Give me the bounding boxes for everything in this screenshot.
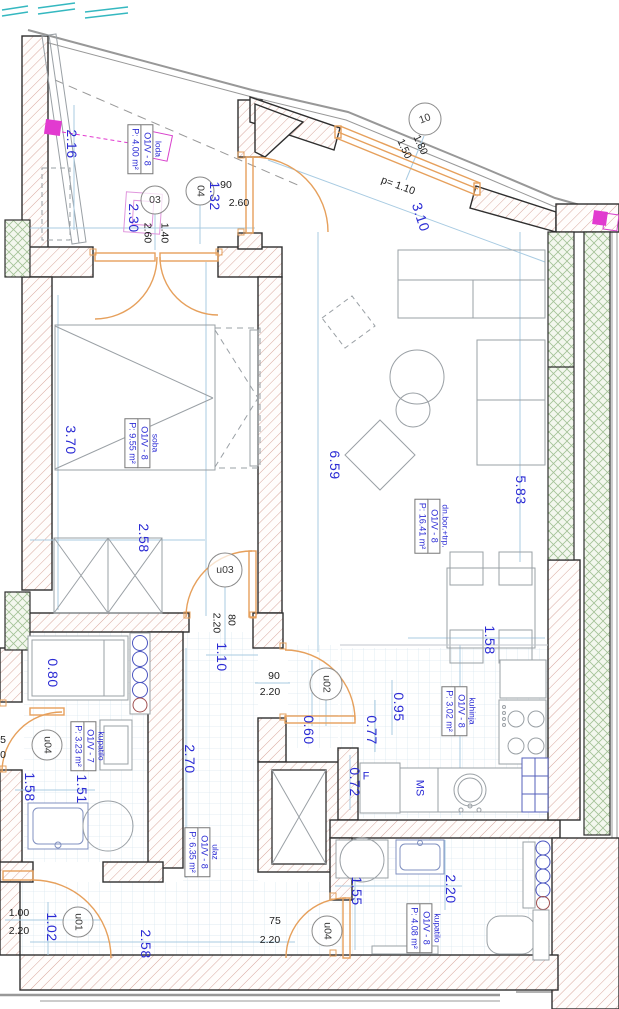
door-tag-03: 03 (149, 195, 161, 206)
room-area: P: 4.08 m² (407, 903, 420, 953)
dim-loda-height: 2.16 (65, 129, 79, 158)
shaft (272, 770, 326, 864)
dim-hall-opening: 1.10 (215, 642, 229, 671)
dim-living-len: 6.59 (328, 450, 342, 479)
dim-bath1-w1: 1.58 (23, 772, 37, 801)
dim-soba-width: 2.58 (137, 523, 151, 552)
room-area: P: 9.55 m² (125, 418, 138, 468)
dim-bath1-w2: 1.51 (75, 774, 89, 803)
dim-kitchen-w: 1.58 (483, 625, 497, 654)
dim-k-seg2: 0.77 (365, 715, 379, 744)
dim-u03-w: 80 (226, 614, 237, 626)
dim-k-seg1: 0.60 (302, 715, 316, 744)
living-room-furniture (322, 250, 548, 663)
room-label-kupatilo-1: kupatilo O1/V - 7 P: 3.23 m² (71, 721, 106, 771)
room-name: dn.bor.+trp. (439, 499, 449, 554)
room-unit: O1/V - 7 (83, 721, 96, 771)
dim-u04b-w: 75 (269, 916, 281, 927)
dim-edge-partial-2: 0 (0, 750, 6, 761)
room-name: kupatilo (431, 903, 441, 953)
room-unit: O1/V - 8 (427, 499, 440, 554)
dim-bath2-w: 2.20 (444, 874, 458, 903)
door-tag-u01: u01 (73, 913, 84, 931)
door-tag-u02: u02 (321, 675, 332, 693)
room-label-dnevni-boravak: dn.bor.+trp. O1/V - 8 P: 16.41 m² (415, 499, 450, 554)
dim-entry-seg: 1.02 (45, 912, 59, 941)
dim-k-seg3: 0.95 (392, 692, 406, 721)
dim-k-seg4: 0.72 (348, 767, 362, 796)
dim-loda-w1: 2.30 (127, 203, 141, 232)
room-area: P: 3.23 m² (71, 721, 84, 771)
door-tag-u04a: u04 (42, 736, 53, 754)
dim-hall-width: 2.70 (183, 744, 197, 773)
room-label-ulaz: ulaz O1/V - 8 P: 6.35 m² (185, 827, 220, 877)
dim-door04-h: 2.60 (229, 198, 249, 209)
room-name: ulaz (209, 827, 219, 877)
label-fridge: F (363, 772, 370, 783)
floor-plan-page: 2.16 2.30 1.32 3.10 3.70 6.59 5.83 2.58 … (0, 0, 619, 1009)
cyan-survey-marks (2, 3, 128, 18)
dim-soba-height: 3.70 (64, 425, 78, 454)
room-unit: O1/V - 8 (419, 903, 432, 953)
dim-edge-partial-1: 5 (0, 735, 6, 746)
room-unit: O1/V - 8 (137, 418, 150, 468)
dim-shower-w: 0.80 (46, 658, 60, 687)
dim-door03-h: 2.60 (142, 223, 153, 243)
dim-door03-w: 1.40 (159, 223, 170, 243)
room-area: P: 16.41 m² (415, 499, 428, 554)
dim-u02-h: 2.20 (260, 687, 280, 698)
dim-u01-h: 2.20 (9, 926, 29, 937)
dim-u01-w: 1.00 (9, 908, 29, 919)
room-area: P: 4.00 m² (128, 124, 141, 174)
door-tag-04: 04 (195, 185, 206, 197)
dim-bath2-h: 1.55 (350, 876, 364, 905)
dim-living-len2: 5.83 (514, 475, 528, 504)
label-sink-unit: MS (414, 780, 425, 797)
room-name: soba (149, 418, 159, 468)
room-unit: O1/V - 8 (197, 827, 210, 877)
dim-u02-w: 90 (268, 671, 280, 682)
dim-corridor-len: 2.58 (139, 929, 153, 958)
room-label-soba: soba O1/V - 8 P: 9.55 m² (125, 418, 160, 468)
door-tag-u03: u03 (216, 565, 234, 576)
room-area: P: 6.35 m² (185, 827, 198, 877)
room-unit: O1/V - 8 (454, 686, 467, 736)
room-area: P: 3.02 m² (442, 686, 455, 736)
door-tag-u04b: u04 (322, 922, 333, 940)
room-label-kuhinja: kuhinja O1/V - 8 P: 3.02 m² (442, 686, 477, 736)
dim-door04-w: 90 (220, 180, 232, 191)
dim-u04b-h: 2.20 (260, 935, 280, 946)
room-unit: O1/V - 8 (140, 124, 153, 174)
room-name: kuhinja (466, 686, 476, 736)
dim-u03-h: 2.20 (211, 613, 222, 633)
room-label-kupatilo-2: kupatilo O1/V - 8 P: 4.08 m² (407, 903, 442, 953)
room-name: loda (152, 124, 162, 174)
room-name: kupatilo (95, 721, 105, 771)
room-label-loda: loda O1/V - 8 P: 4.00 m² (128, 124, 163, 174)
